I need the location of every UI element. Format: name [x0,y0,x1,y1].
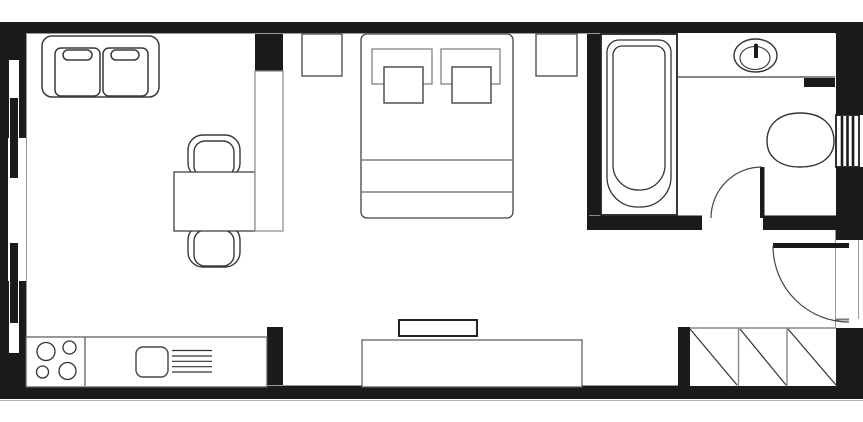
wall-stub-living-bedroom [255,33,283,71]
closet-diagonal-2 [740,329,786,385]
tv-console [362,340,582,387]
living-area [42,36,283,267]
nightstand-left [302,34,342,76]
tv-unit [362,320,582,387]
entry-door-swing-arc [773,246,849,322]
bathtub [601,34,677,215]
burner-large [37,343,55,361]
bathroom-door [711,167,765,218]
closet-diagonal-1 [690,329,737,385]
floor-plan-canvas [0,0,863,422]
tv [399,320,477,336]
bedroom [302,34,577,218]
burner-small-top [63,341,76,354]
nightstand-right [536,34,577,76]
toilet-area [767,113,859,167]
double-bed [361,34,513,218]
wall-bottom [0,386,863,399]
sofa [42,36,159,97]
basin-area [678,33,835,77]
kitchen [26,337,267,387]
wall-bathroom-bottom-left [587,216,702,230]
wall-bathroom-bottom-right [763,216,836,230]
closet-diagonals [690,329,836,385]
wall-right-bottom [836,328,863,399]
duvet-right [452,67,491,103]
wall-right-top [836,22,863,115]
left-wall-window-upper-sash [10,98,18,178]
entry-door-leaf [773,243,849,248]
dining-set [174,135,255,267]
burner-small-bottom [37,366,49,378]
floor-plan [0,0,863,422]
bathroom-door-leaf [760,167,765,218]
room-divider [255,71,283,231]
tap-body [754,47,758,58]
closet-left-post [678,327,690,387]
wall-top [0,22,863,33]
sofa-pillow-left [63,50,92,60]
bathroom-door-swing-arc [711,167,762,218]
closet-three-sections [690,328,836,386]
bathroom [601,33,859,218]
wall-right-middle [836,167,863,240]
window-left-wall [9,60,19,353]
wall-stub-kitchen-end [267,327,283,389]
toilet-bowl [767,113,834,167]
entry [773,240,859,322]
sofa-pillow-right [111,50,139,60]
wall-bedroom-bathroom [587,33,602,230]
dining-table [174,172,255,231]
left-wall-window-lower-sash [10,243,18,323]
duvet-left [384,67,423,103]
tap-icon [754,44,758,48]
burner-medium [59,363,76,380]
chair-bottom-inner [194,230,234,266]
closet-diagonal-3 [788,329,836,385]
kitchen-sink [136,347,168,377]
